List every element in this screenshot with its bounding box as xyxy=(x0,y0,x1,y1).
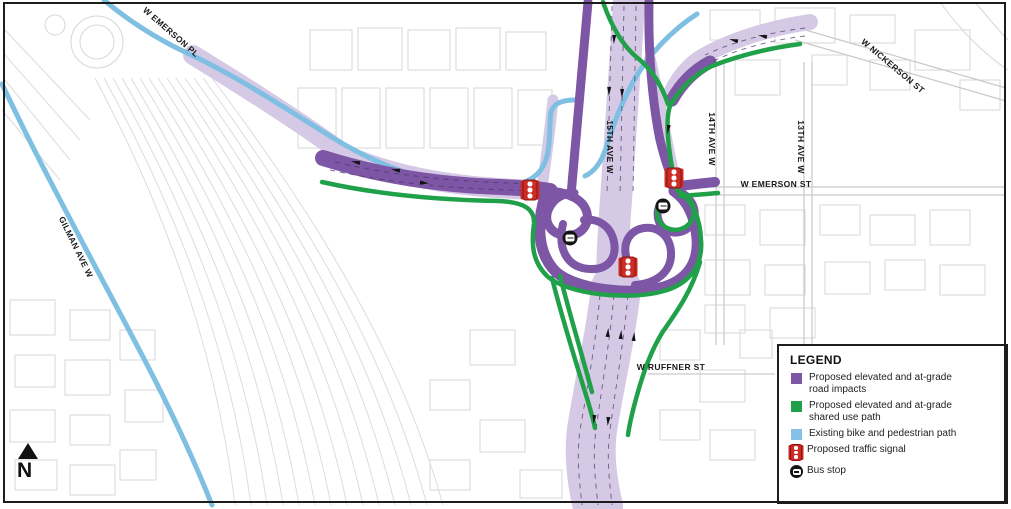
legend-item-shared-use-path: Proposed elevated and at-grade shared us… xyxy=(790,400,997,424)
legend-item-road-impacts: Proposed elevated and at-grade road impa… xyxy=(790,372,997,396)
bus-stop-legend-icon xyxy=(790,465,803,478)
traffic-signal-icon xyxy=(667,168,682,189)
legend-title: LEGEND xyxy=(790,353,997,367)
shared-use-path-swatch xyxy=(791,401,802,412)
map-figure: W EMERSON PL W NICKERSON ST GILMAN AVE W… xyxy=(0,0,1011,509)
traffic-signal-icon xyxy=(621,257,636,278)
legend-item-label: Bus stop xyxy=(807,465,846,477)
basemap-streets xyxy=(648,27,1006,374)
legend-item-bus-stop: Bus stop xyxy=(790,465,997,478)
north-label: N xyxy=(17,459,47,482)
legend-item-bike-ped-path: Existing bike and pedestrian path xyxy=(790,428,997,440)
roads-light-purple xyxy=(193,2,810,507)
legend-item-traffic-signal: Proposed traffic signal xyxy=(790,444,997,461)
roads-dark-purple xyxy=(323,2,715,291)
street-label-w-ruffner-st: W RUFFNER ST xyxy=(637,362,705,372)
traffic-signal-icon xyxy=(523,180,538,201)
north-arrow: N xyxy=(17,443,47,482)
street-label-14th-ave-w: 14TH AVE W xyxy=(707,112,717,166)
road-impacts-swatch xyxy=(791,373,802,384)
legend-item-label: Existing bike and pedestrian path xyxy=(809,428,956,440)
legend-item-label: Proposed elevated and at-grade road impa… xyxy=(809,372,952,396)
legend: LEGEND Proposed elevated and at-grade ro… xyxy=(777,344,1008,504)
north-arrow-icon xyxy=(18,443,38,459)
legend-item-label: Proposed traffic signal xyxy=(807,444,906,456)
traffic-signal-legend-icon xyxy=(790,444,802,461)
bus-stop-icon xyxy=(656,199,671,214)
bus-stop-icon xyxy=(563,231,578,246)
street-label-w-emerson-st: W EMERSON ST xyxy=(741,179,812,189)
legend-item-label: Proposed elevated and at-grade shared us… xyxy=(809,400,952,424)
street-label-13th-ave-w: 13TH AVE W xyxy=(796,120,806,174)
basemap-railyard xyxy=(2,30,443,505)
bike-ped-path-swatch xyxy=(791,429,802,440)
street-label-15th-ave-w: 15TH AVE W xyxy=(605,120,615,174)
